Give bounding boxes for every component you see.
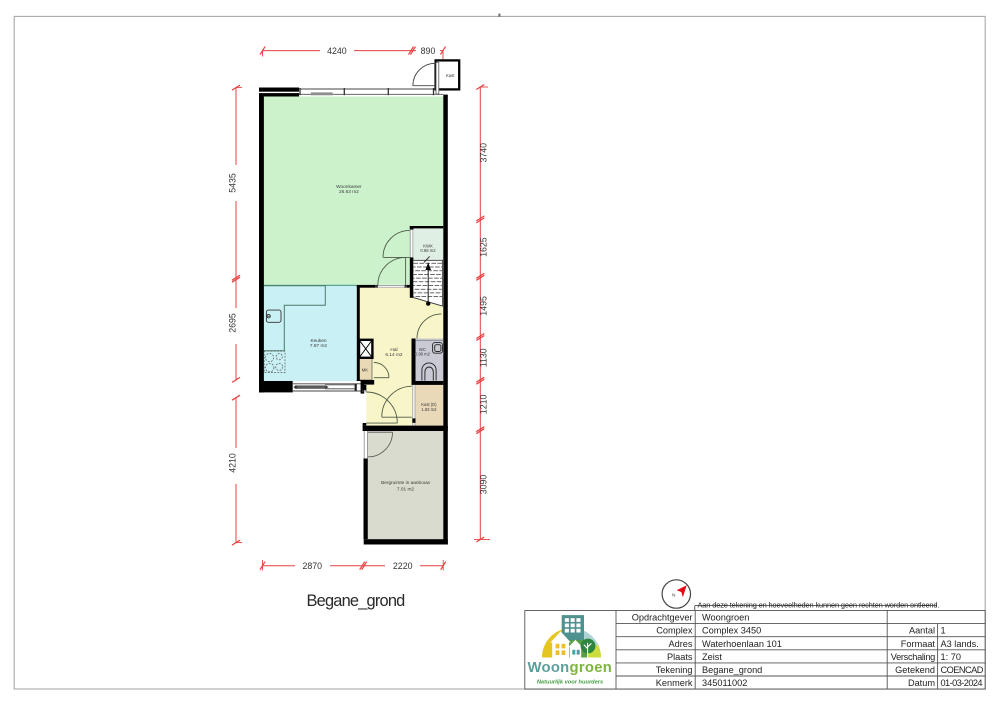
svg-text:4210: 4210 [228, 453, 238, 473]
svg-text:1495: 1495 [479, 296, 489, 316]
svg-text:2220: 2220 [393, 561, 413, 571]
svg-text:5435: 5435 [228, 173, 238, 193]
svg-text:7.87 m2: 7.87 m2 [310, 343, 328, 349]
svg-text:345011002: 345011002 [702, 678, 747, 688]
svg-text:0.96 m2: 0.96 m2 [415, 351, 431, 356]
svg-text:890: 890 [421, 46, 436, 56]
svg-text:1625: 1625 [479, 237, 489, 257]
svg-text:Bergruimte in aanbouw: Bergruimte in aanbouw [381, 480, 430, 486]
svg-text:Adres: Adres [668, 639, 692, 649]
svg-text:Complex 3450: Complex 3450 [702, 626, 761, 636]
svg-text:2870: 2870 [303, 561, 323, 571]
svg-text:Woongroen: Woongroen [702, 613, 749, 623]
svg-text:Zeist: Zeist [702, 652, 722, 662]
svg-text:MK: MK [362, 368, 368, 373]
svg-text:Complex: Complex [656, 626, 693, 636]
svg-text:Woongroen: Woongroen [527, 660, 612, 676]
svg-text:3740: 3740 [479, 143, 489, 163]
svg-text:1.83 m2: 1.83 m2 [421, 407, 437, 412]
svg-text:Kast: Kast [446, 73, 455, 78]
svg-text:1: 1 [941, 626, 946, 636]
svg-text:2695: 2695 [228, 313, 238, 333]
svg-text:4240: 4240 [327, 46, 347, 56]
svg-text:6.14 m2: 6.14 m2 [385, 352, 403, 358]
svg-text:Getekend: Getekend [895, 665, 935, 675]
svg-text:1: 70: 1: 70 [941, 652, 961, 662]
svg-text:Waterhoenlaan 101: Waterhoenlaan 101 [702, 639, 782, 649]
svg-text:26.63 m2: 26.63 m2 [339, 189, 359, 195]
svg-text:COENCAD: COENCAD [941, 665, 984, 675]
svg-text:3090: 3090 [479, 475, 489, 495]
svg-text:Datum: Datum [908, 678, 935, 688]
svg-text:1130: 1130 [479, 348, 489, 367]
svg-text:Formaat: Formaat [901, 639, 936, 649]
svg-text:Begane_grond: Begane_grond [702, 665, 762, 675]
svg-text:Opdrachtgever: Opdrachtgever [632, 613, 693, 623]
svg-text:Kenmerk: Kenmerk [656, 678, 693, 688]
svg-text:01-03-2024: 01-03-2024 [941, 678, 983, 688]
svg-text:7.01 m2: 7.01 m2 [397, 486, 415, 492]
svg-text:A3 lands.: A3 lands. [941, 639, 979, 649]
svg-text:0.88 m2: 0.88 m2 [420, 248, 436, 253]
svg-text:N: N [672, 593, 676, 599]
svg-text:Tekening: Tekening [656, 665, 693, 675]
svg-text:Aantal: Aantal [909, 626, 935, 636]
svg-text:Natuurlijk voor huurders: Natuurlijk voor huurders [537, 680, 603, 686]
svg-text:Begane_grond: Begane_grond [307, 592, 406, 610]
svg-text:1210: 1210 [479, 395, 489, 415]
svg-text:Verschaling: Verschaling [891, 652, 935, 662]
svg-text:Plaats: Plaats [667, 652, 693, 662]
svg-text:Aan deze tekening en hoeveelhe: Aan deze tekening en hoeveelheden kunnen… [698, 601, 940, 610]
